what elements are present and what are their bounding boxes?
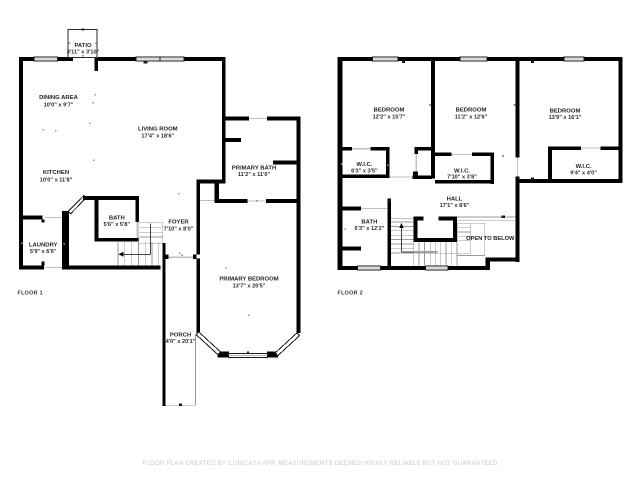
svg-text:12'2" x 15'7": 12'2" x 15'7" [373, 115, 406, 121]
svg-text:4'0" x 20'1": 4'0" x 20'1" [166, 339, 196, 345]
svg-text:BEDROOM: BEDROOM [374, 108, 405, 114]
svg-text:17'4" x 18'6": 17'4" x 18'6" [141, 134, 174, 140]
svg-text:3'11" x 3'10": 3'11" x 3'10" [67, 50, 100, 56]
svg-text:KITCHEN: KITCHEN [43, 170, 69, 176]
svg-text:9'4" x 4'0": 9'4" x 4'0" [570, 170, 597, 176]
svg-text:FLOOR PLAN CREATED BY CUBICASA: FLOOR PLAN CREATED BY CUBICASA APP. MEAS… [142, 461, 499, 467]
svg-text:7'10" x 3'8": 7'10" x 3'8" [447, 174, 477, 180]
svg-text:BATH: BATH [109, 215, 125, 221]
svg-text:BEDROOM: BEDROOM [550, 108, 581, 114]
svg-text:PATIO: PATIO [74, 43, 92, 49]
svg-text:LAUNDRY: LAUNDRY [29, 242, 58, 248]
svg-text:11'2" x 11'0": 11'2" x 11'0" [238, 172, 271, 178]
svg-text:10'0" x 9'7": 10'0" x 9'7" [44, 102, 74, 108]
svg-text:17'1" x 8'6": 17'1" x 8'6" [440, 203, 470, 209]
svg-text:DINING AREA: DINING AREA [39, 95, 78, 101]
svg-text:PORCH: PORCH [170, 333, 191, 339]
svg-text:FOYER: FOYER [168, 220, 189, 226]
svg-text:LIVING ROOM: LIVING ROOM [138, 127, 178, 133]
svg-text:5'6" x 5'8": 5'6" x 5'8" [103, 222, 130, 228]
svg-text:6'3" x 3'5": 6'3" x 3'5" [351, 168, 378, 174]
svg-text:W.I.C.: W.I.C. [576, 164, 592, 170]
svg-text:5'9" x 6'6": 5'9" x 6'6" [30, 249, 57, 255]
svg-text:11'2" x 12'6": 11'2" x 12'6" [455, 115, 488, 121]
svg-text:10'0" x 11'8": 10'0" x 11'8" [40, 178, 73, 184]
svg-text:PRIMARY BATH: PRIMARY BATH [232, 165, 276, 171]
svg-text:HALL: HALL [447, 197, 463, 203]
svg-text:BEDROOM: BEDROOM [456, 108, 487, 114]
svg-text:FLOOR 1: FLOOR 1 [18, 291, 43, 297]
svg-text:OPEN TO BELOW: OPEN TO BELOW [466, 236, 515, 242]
svg-text:BATH: BATH [361, 220, 377, 226]
svg-text:7'10" x 8'0": 7'10" x 8'0" [164, 227, 194, 233]
svg-text:6'3" x 12'2": 6'3" x 12'2" [355, 226, 385, 232]
svg-text:13'7" x 20'5": 13'7" x 20'5" [233, 284, 266, 290]
svg-text:13'9" x 16'1": 13'9" x 16'1" [549, 115, 582, 121]
svg-text:PRIMARY BEDROOM: PRIMARY BEDROOM [219, 277, 278, 283]
svg-text:W.I.C.: W.I.C. [356, 162, 372, 168]
svg-text:FLOOR 2: FLOOR 2 [338, 291, 363, 297]
